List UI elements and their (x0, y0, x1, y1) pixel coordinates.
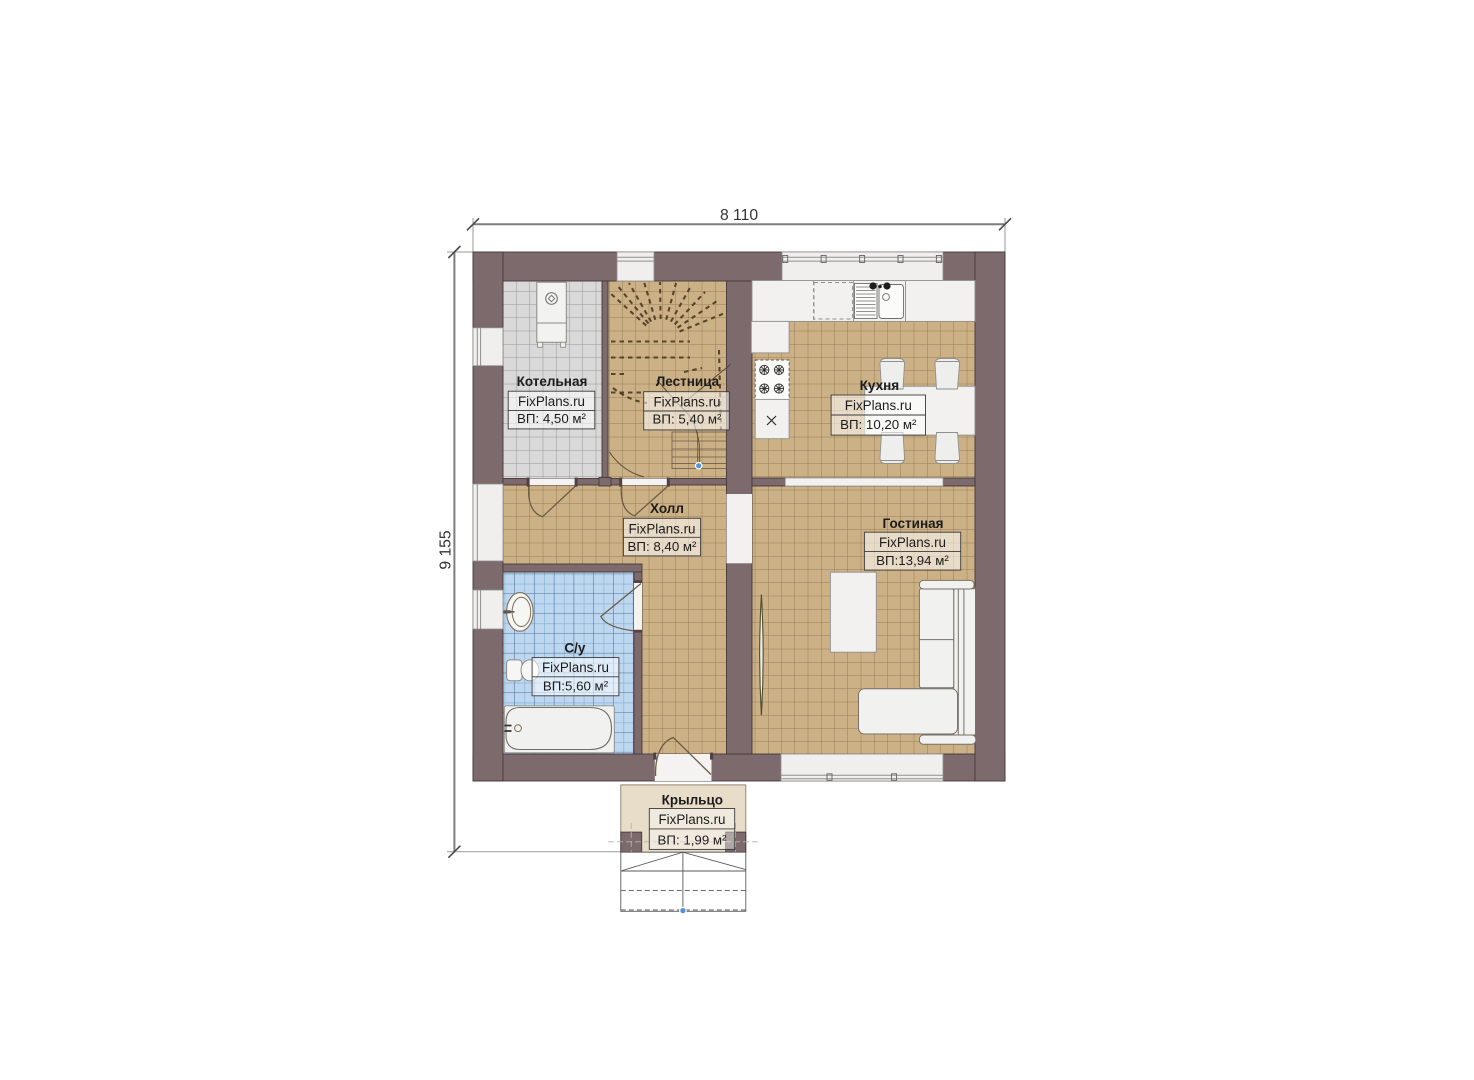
svg-text:Гостиная: Гостиная (882, 516, 943, 531)
svg-text:Лестница: Лестница (656, 374, 720, 389)
svg-text:ВП:5,60 м²: ВП:5,60 м² (543, 679, 609, 694)
svg-text:FixPlans.ru: FixPlans.ru (542, 660, 609, 675)
svg-text:ВП: 8,40 м²: ВП: 8,40 м² (628, 539, 698, 554)
svg-text:ВП:13,94 м²: ВП:13,94 м² (876, 553, 949, 568)
svg-text:ВП: 1,99 м²: ВП: 1,99 м² (658, 832, 728, 847)
svg-text:Кухня: Кухня (860, 378, 899, 393)
svg-text:FixPlans.ru: FixPlans.ru (654, 394, 721, 409)
svg-text:ВП: 5,40 м²: ВП: 5,40 м² (653, 411, 723, 426)
svg-text:FixPlans.ru: FixPlans.ru (879, 535, 946, 550)
svg-text:Холл: Холл (650, 501, 684, 516)
svg-text:ВП: 4,50 м²: ВП: 4,50 м² (517, 411, 587, 426)
svg-text:9 155: 9 155 (438, 530, 455, 570)
svg-text:С/у: С/у (564, 641, 586, 656)
svg-text:ВП: 10,20 м²: ВП: 10,20 м² (840, 417, 917, 432)
svg-text:Крыльцо: Крыльцо (662, 793, 723, 808)
svg-text:FixPlans.ru: FixPlans.ru (629, 522, 696, 537)
svg-text:Котельная: Котельная (517, 374, 588, 389)
svg-text:FixPlans.ru: FixPlans.ru (845, 398, 912, 413)
svg-text:FixPlans.ru: FixPlans.ru (518, 394, 585, 409)
svg-text:FixPlans.ru: FixPlans.ru (659, 812, 726, 827)
svg-text:8 110: 8 110 (720, 207, 758, 224)
